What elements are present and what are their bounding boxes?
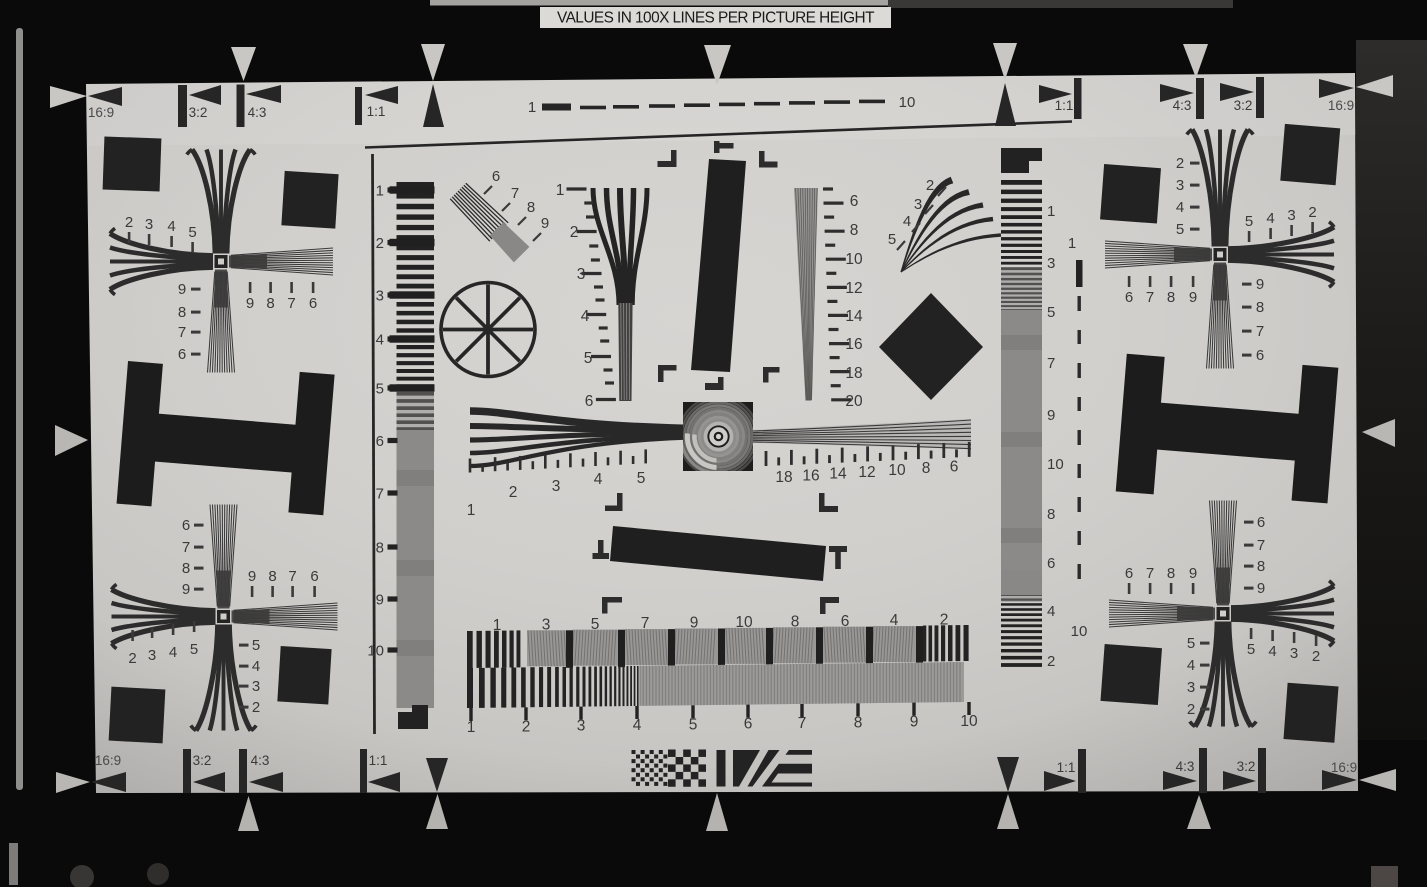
svg-text:3: 3 [1187, 679, 1195, 696]
svg-text:1: 1 [467, 502, 476, 519]
svg-text:16: 16 [845, 336, 862, 353]
svg-text:2: 2 [376, 235, 384, 252]
svg-text:10: 10 [1047, 456, 1064, 473]
svg-text:9: 9 [246, 295, 254, 312]
svg-text:4: 4 [1266, 210, 1274, 227]
svg-text:12: 12 [845, 280, 862, 297]
svg-text:5: 5 [1176, 221, 1184, 238]
svg-text:1: 1 [467, 719, 476, 736]
svg-text:10: 10 [735, 614, 753, 631]
svg-text:1: 1 [376, 183, 384, 200]
svg-text:2: 2 [1308, 204, 1316, 221]
svg-text:9: 9 [1047, 407, 1055, 424]
svg-text:2: 2 [1047, 653, 1055, 670]
svg-text:1:1: 1:1 [1057, 760, 1076, 775]
svg-text:8: 8 [1047, 506, 1055, 523]
svg-text:6: 6 [1125, 289, 1133, 306]
svg-text:9: 9 [1189, 565, 1197, 582]
svg-text:10: 10 [888, 462, 906, 479]
svg-text:4: 4 [1187, 657, 1195, 674]
svg-text:10: 10 [1071, 623, 1088, 640]
svg-text:1: 1 [528, 99, 536, 116]
svg-text:7: 7 [182, 539, 190, 556]
svg-text:10: 10 [367, 643, 384, 660]
svg-text:5: 5 [637, 470, 646, 487]
svg-text:2: 2 [926, 177, 934, 194]
svg-text:3: 3 [252, 678, 260, 695]
svg-text:5: 5 [1047, 304, 1055, 321]
svg-text:6: 6 [950, 459, 959, 476]
svg-text:5: 5 [376, 381, 384, 398]
svg-text:18: 18 [845, 365, 862, 382]
svg-text:VALUES IN 100X LINES PER PICTU: VALUES IN 100X LINES PER PICTURE HEIGHT [557, 10, 875, 27]
svg-text:2: 2 [1176, 155, 1184, 172]
svg-text:1: 1 [1047, 203, 1055, 220]
svg-text:4: 4 [594, 471, 603, 488]
svg-text:3: 3 [1290, 645, 1298, 662]
svg-text:4: 4 [633, 717, 642, 734]
svg-text:6: 6 [376, 433, 384, 450]
svg-text:7: 7 [376, 486, 384, 503]
svg-text:6: 6 [1256, 347, 1264, 364]
svg-text:16:9: 16:9 [1331, 760, 1357, 775]
svg-text:3: 3 [577, 266, 586, 283]
svg-text:9: 9 [1257, 580, 1265, 597]
svg-text:8: 8 [1256, 299, 1264, 316]
svg-text:4: 4 [890, 612, 899, 629]
svg-text:8: 8 [178, 304, 186, 321]
svg-text:7: 7 [1146, 565, 1154, 582]
svg-text:4: 4 [1047, 603, 1055, 620]
svg-text:2: 2 [1187, 701, 1195, 718]
svg-text:4: 4 [1176, 199, 1184, 216]
svg-text:20: 20 [845, 393, 863, 410]
svg-text:3: 3 [148, 647, 156, 664]
svg-text:1: 1 [1068, 235, 1076, 252]
svg-text:3: 3 [542, 616, 551, 633]
svg-text:16:9: 16:9 [1328, 98, 1354, 113]
svg-text:2: 2 [940, 612, 949, 629]
svg-text:2: 2 [252, 699, 260, 716]
svg-text:4: 4 [903, 213, 911, 230]
svg-text:7: 7 [288, 568, 296, 585]
svg-text:3: 3 [1287, 207, 1295, 224]
svg-text:2: 2 [522, 718, 531, 735]
svg-text:5: 5 [689, 716, 698, 733]
svg-text:5: 5 [188, 224, 196, 241]
svg-text:4:3: 4:3 [1176, 759, 1195, 774]
svg-text:4: 4 [1268, 643, 1276, 660]
svg-text:4: 4 [167, 218, 175, 235]
svg-text:4:3: 4:3 [251, 753, 270, 768]
svg-text:6: 6 [1047, 555, 1055, 572]
svg-text:5: 5 [1245, 213, 1253, 230]
svg-text:14: 14 [829, 466, 847, 483]
svg-text:4: 4 [581, 308, 590, 325]
svg-text:1: 1 [556, 182, 565, 199]
svg-text:10: 10 [899, 94, 916, 111]
svg-text:16:9: 16:9 [95, 753, 121, 768]
svg-text:8: 8 [268, 568, 276, 585]
svg-text:1:1: 1:1 [367, 104, 386, 119]
svg-text:3:2: 3:2 [193, 753, 212, 768]
svg-text:7: 7 [798, 715, 807, 732]
svg-text:3: 3 [376, 288, 384, 305]
svg-text:10: 10 [960, 713, 978, 730]
svg-text:6: 6 [182, 517, 190, 534]
svg-text:5: 5 [1187, 635, 1195, 652]
svg-text:8: 8 [527, 199, 535, 216]
svg-text:7: 7 [511, 185, 519, 202]
svg-text:9: 9 [1189, 289, 1197, 306]
svg-text:9: 9 [1256, 276, 1264, 293]
svg-text:8: 8 [1167, 565, 1175, 582]
svg-text:6: 6 [1257, 514, 1265, 531]
svg-text:8: 8 [266, 295, 274, 312]
svg-text:7: 7 [1256, 323, 1264, 340]
svg-text:8: 8 [922, 460, 931, 477]
svg-text:9: 9 [910, 714, 919, 731]
svg-text:4: 4 [252, 658, 260, 675]
svg-text:6: 6 [1125, 565, 1133, 582]
svg-text:16:9: 16:9 [88, 105, 114, 120]
svg-text:5: 5 [584, 350, 593, 367]
svg-text:3: 3 [1176, 177, 1184, 194]
svg-text:2: 2 [570, 224, 579, 241]
svg-text:3:2: 3:2 [189, 105, 208, 120]
svg-text:4: 4 [169, 644, 177, 661]
svg-text:7: 7 [1257, 537, 1265, 554]
svg-text:5: 5 [252, 637, 260, 654]
svg-text:2: 2 [125, 214, 133, 231]
svg-text:6: 6 [744, 716, 753, 733]
svg-text:8: 8 [1167, 289, 1175, 306]
svg-text:9: 9 [182, 581, 190, 598]
svg-text:8: 8 [791, 613, 800, 630]
svg-text:3: 3 [552, 478, 561, 495]
svg-text:3: 3 [145, 216, 153, 233]
svg-text:8: 8 [182, 560, 190, 577]
svg-text:5: 5 [591, 616, 600, 633]
svg-text:10: 10 [845, 251, 863, 268]
svg-text:5: 5 [1247, 641, 1255, 658]
svg-text:8: 8 [1257, 558, 1265, 575]
svg-text:8: 8 [376, 540, 384, 557]
svg-text:1:1: 1:1 [369, 753, 388, 768]
svg-text:4:3: 4:3 [248, 105, 267, 120]
svg-text:6: 6 [492, 168, 500, 185]
svg-text:6: 6 [178, 346, 186, 363]
svg-text:2: 2 [1312, 648, 1320, 665]
svg-text:12: 12 [858, 464, 875, 481]
svg-text:14: 14 [845, 308, 863, 325]
svg-text:3:2: 3:2 [1234, 98, 1253, 113]
svg-text:9: 9 [248, 568, 256, 585]
svg-text:6: 6 [585, 393, 594, 410]
svg-text:2: 2 [128, 650, 136, 667]
svg-text:7: 7 [178, 324, 186, 341]
svg-text:3: 3 [577, 718, 586, 735]
svg-text:6: 6 [309, 295, 317, 312]
svg-text:16: 16 [802, 467, 819, 484]
svg-text:6: 6 [310, 568, 318, 585]
svg-text:6: 6 [850, 193, 859, 210]
svg-text:4:3: 4:3 [1173, 98, 1192, 113]
svg-text:18: 18 [775, 469, 792, 486]
svg-text:2: 2 [509, 484, 518, 501]
svg-text:5: 5 [190, 641, 198, 658]
svg-text:1:1: 1:1 [1055, 98, 1074, 113]
svg-text:7: 7 [1047, 355, 1055, 372]
svg-text:9: 9 [690, 615, 699, 632]
svg-text:1: 1 [493, 617, 502, 634]
svg-text:9: 9 [376, 592, 384, 609]
svg-text:6: 6 [841, 613, 850, 630]
svg-text:7: 7 [287, 295, 295, 312]
svg-text:3: 3 [914, 196, 922, 213]
svg-text:7: 7 [641, 615, 650, 632]
svg-text:9: 9 [541, 215, 549, 232]
svg-text:9: 9 [178, 281, 186, 298]
svg-text:5: 5 [888, 231, 896, 248]
svg-text:3:2: 3:2 [1237, 759, 1256, 774]
svg-text:4: 4 [376, 332, 384, 349]
svg-text:3: 3 [1047, 255, 1055, 272]
svg-text:8: 8 [854, 714, 863, 731]
svg-text:7: 7 [1146, 289, 1154, 306]
svg-text:8: 8 [850, 222, 859, 239]
